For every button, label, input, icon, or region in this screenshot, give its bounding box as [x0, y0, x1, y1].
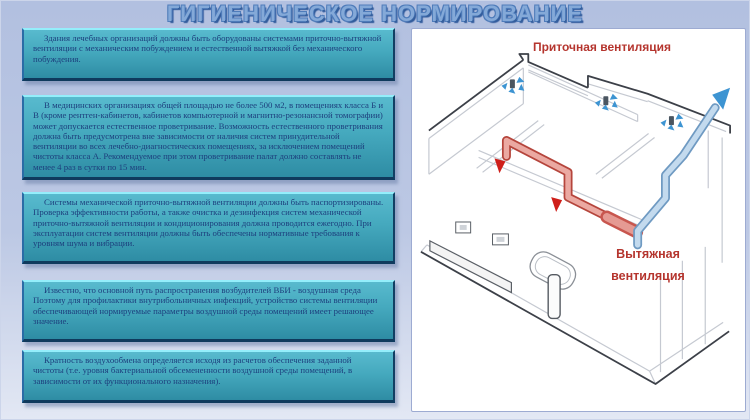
slide-background: ГИГИЕНИЧЕСКОЕ НОРМИРОВАНИЕ Здания лечебн… — [0, 0, 750, 420]
text-block-5: Кратность воздухообмена определяется исх… — [22, 350, 395, 403]
ceiling-diffuser-icon — [501, 77, 524, 94]
text-block-2: В медицинских организациях общей площадь… — [22, 95, 395, 180]
ceiling-diffuser-icon — [661, 114, 684, 131]
supply-air-arrow-icon — [551, 197, 562, 212]
diagram-panel: Приточная вентиляция Вытяжная вентиляция — [411, 28, 746, 412]
exhaust-duct — [638, 88, 730, 245]
text-block-3: Системы механической приточно-вытяжной в… — [22, 192, 395, 264]
page-title: ГИГИЕНИЧЕСКОЕ НОРМИРОВАНИЕ — [0, 1, 750, 27]
supply-ventilation-label: Приточная вентиляция — [527, 40, 677, 54]
ventilation-diagram-illustration — [412, 29, 745, 411]
text-block-4: Известно, что основной путь распростране… — [22, 280, 395, 342]
exhaust-ventilation-label: Вытяжная вентиляция — [597, 243, 699, 287]
text-block-1: Здания лечебных организаций должны быть … — [22, 28, 395, 81]
supply-duct — [495, 140, 637, 231]
building-outline — [421, 54, 730, 384]
